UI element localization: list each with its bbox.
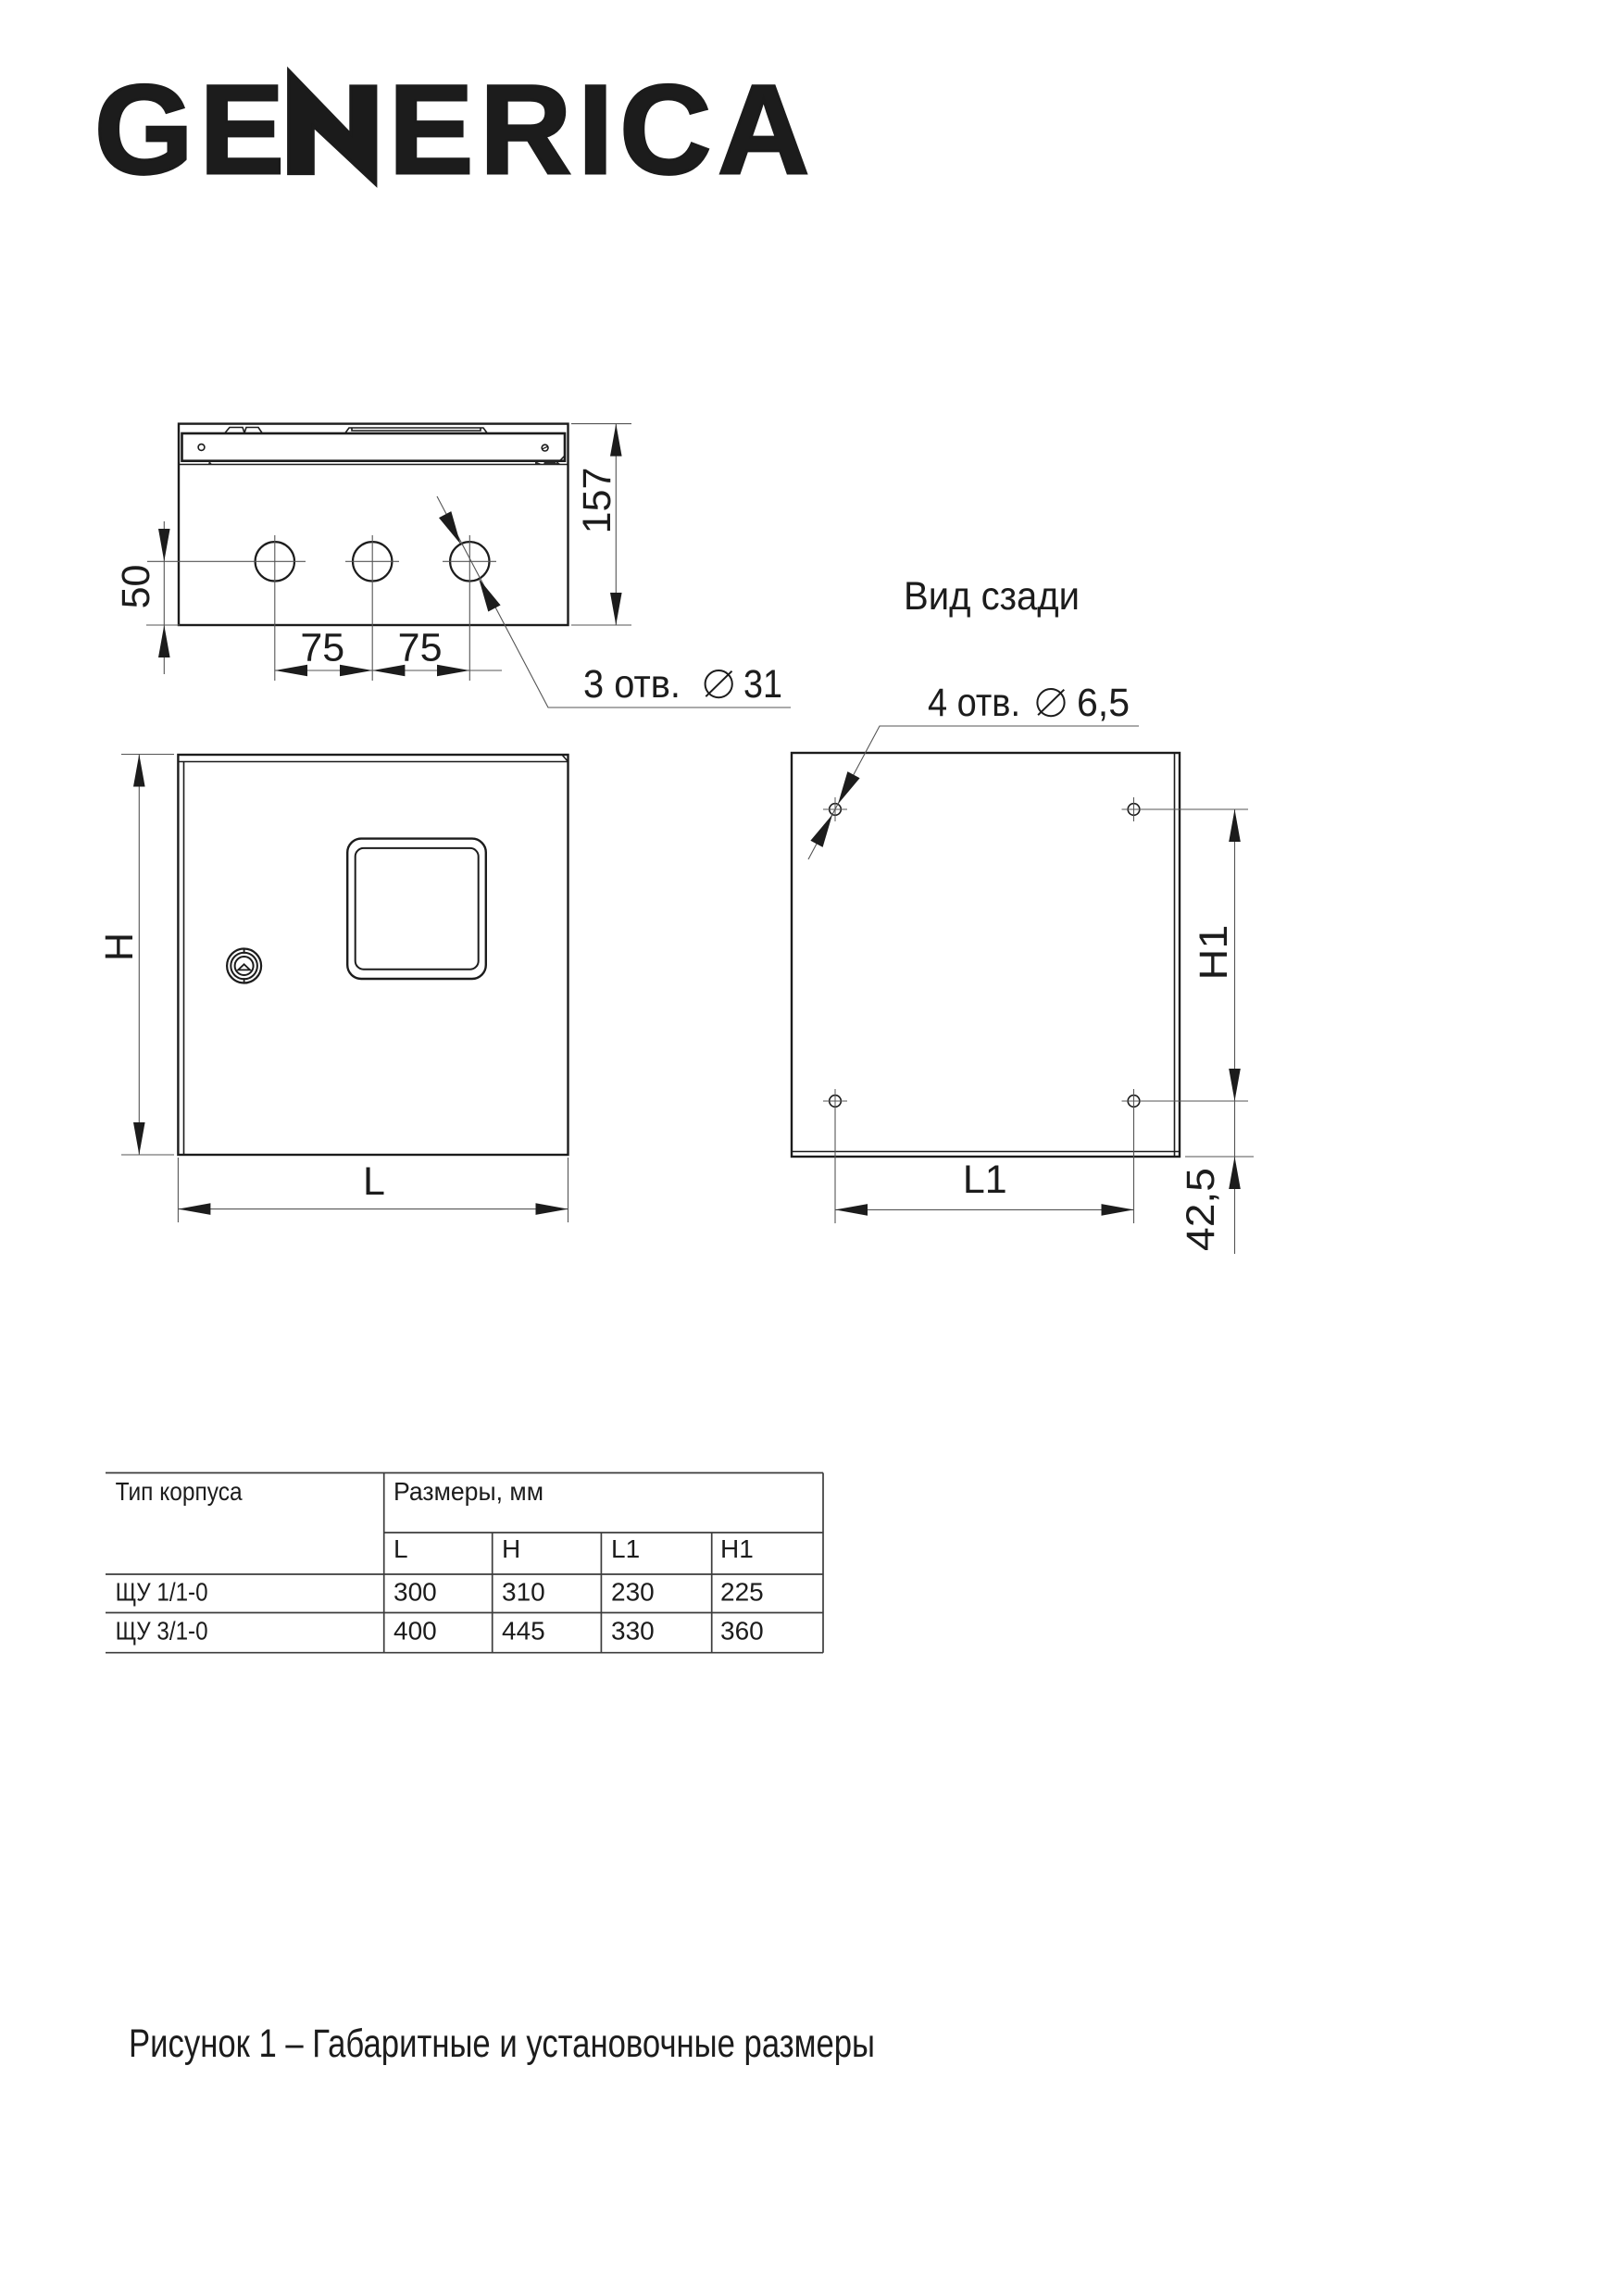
svg-text:330: 330 bbox=[611, 1617, 655, 1646]
svg-text:H: H bbox=[97, 933, 142, 961]
svg-text:300: 300 bbox=[394, 1578, 437, 1607]
svg-text:ЩУ 3/1-0: ЩУ 3/1-0 bbox=[116, 1617, 208, 1646]
svg-text:225: 225 bbox=[720, 1578, 764, 1607]
svg-text:360: 360 bbox=[720, 1617, 764, 1646]
svg-text:400: 400 bbox=[394, 1617, 437, 1646]
svg-text:42,5: 42,5 bbox=[1179, 1168, 1223, 1251]
svg-text:L: L bbox=[394, 1534, 408, 1563]
svg-text:75: 75 bbox=[300, 626, 344, 670]
svg-text:230: 230 bbox=[611, 1578, 655, 1607]
svg-text:H1: H1 bbox=[720, 1534, 754, 1563]
svg-text:3 отв.: 3 отв. bbox=[583, 662, 681, 707]
svg-text:31: 31 bbox=[743, 662, 782, 707]
svg-text:ЩУ 1/1-0: ЩУ 1/1-0 bbox=[116, 1578, 208, 1607]
svg-text:Вид сзади: Вид сзади bbox=[904, 574, 1080, 619]
svg-text:Размеры, мм: Размеры, мм bbox=[394, 1477, 543, 1506]
svg-text:L1: L1 bbox=[611, 1534, 640, 1563]
svg-text:H: H bbox=[502, 1534, 520, 1563]
svg-text:50: 50 bbox=[114, 565, 158, 609]
svg-text:L: L bbox=[363, 1159, 385, 1204]
svg-text:310: 310 bbox=[502, 1578, 545, 1607]
svg-text:75: 75 bbox=[398, 626, 443, 670]
svg-text:445: 445 bbox=[502, 1617, 545, 1646]
svg-text:157: 157 bbox=[575, 468, 619, 534]
svg-text:L1: L1 bbox=[963, 1158, 1007, 1202]
svg-text:H1: H1 bbox=[1192, 925, 1236, 981]
svg-text:Тип корпуса: Тип корпуса bbox=[116, 1477, 243, 1506]
svg-text:6,5: 6,5 bbox=[1077, 681, 1130, 725]
svg-text:GENERICA: GENERICA bbox=[94, 59, 816, 201]
svg-text:Рисунок 1 – Габаритные и устан: Рисунок 1 – Габаритные и установочные ра… bbox=[129, 2022, 875, 2066]
svg-text:4 отв.: 4 отв. bbox=[928, 681, 1020, 725]
